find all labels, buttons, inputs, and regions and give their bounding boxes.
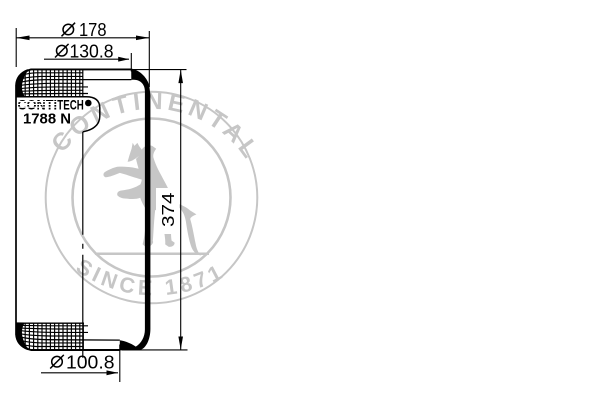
svg-text:374: 374 <box>158 192 178 227</box>
svg-text:130.8: 130.8 <box>70 40 114 61</box>
svg-text:100.8: 100.8 <box>66 351 115 372</box>
svg-text:SINCE 1871: SINCE 1871 <box>72 254 229 300</box>
svg-text:1788 N: 1788 N <box>23 112 71 128</box>
svg-text:TECH: TECH <box>57 97 84 112</box>
svg-text:178: 178 <box>79 19 107 40</box>
